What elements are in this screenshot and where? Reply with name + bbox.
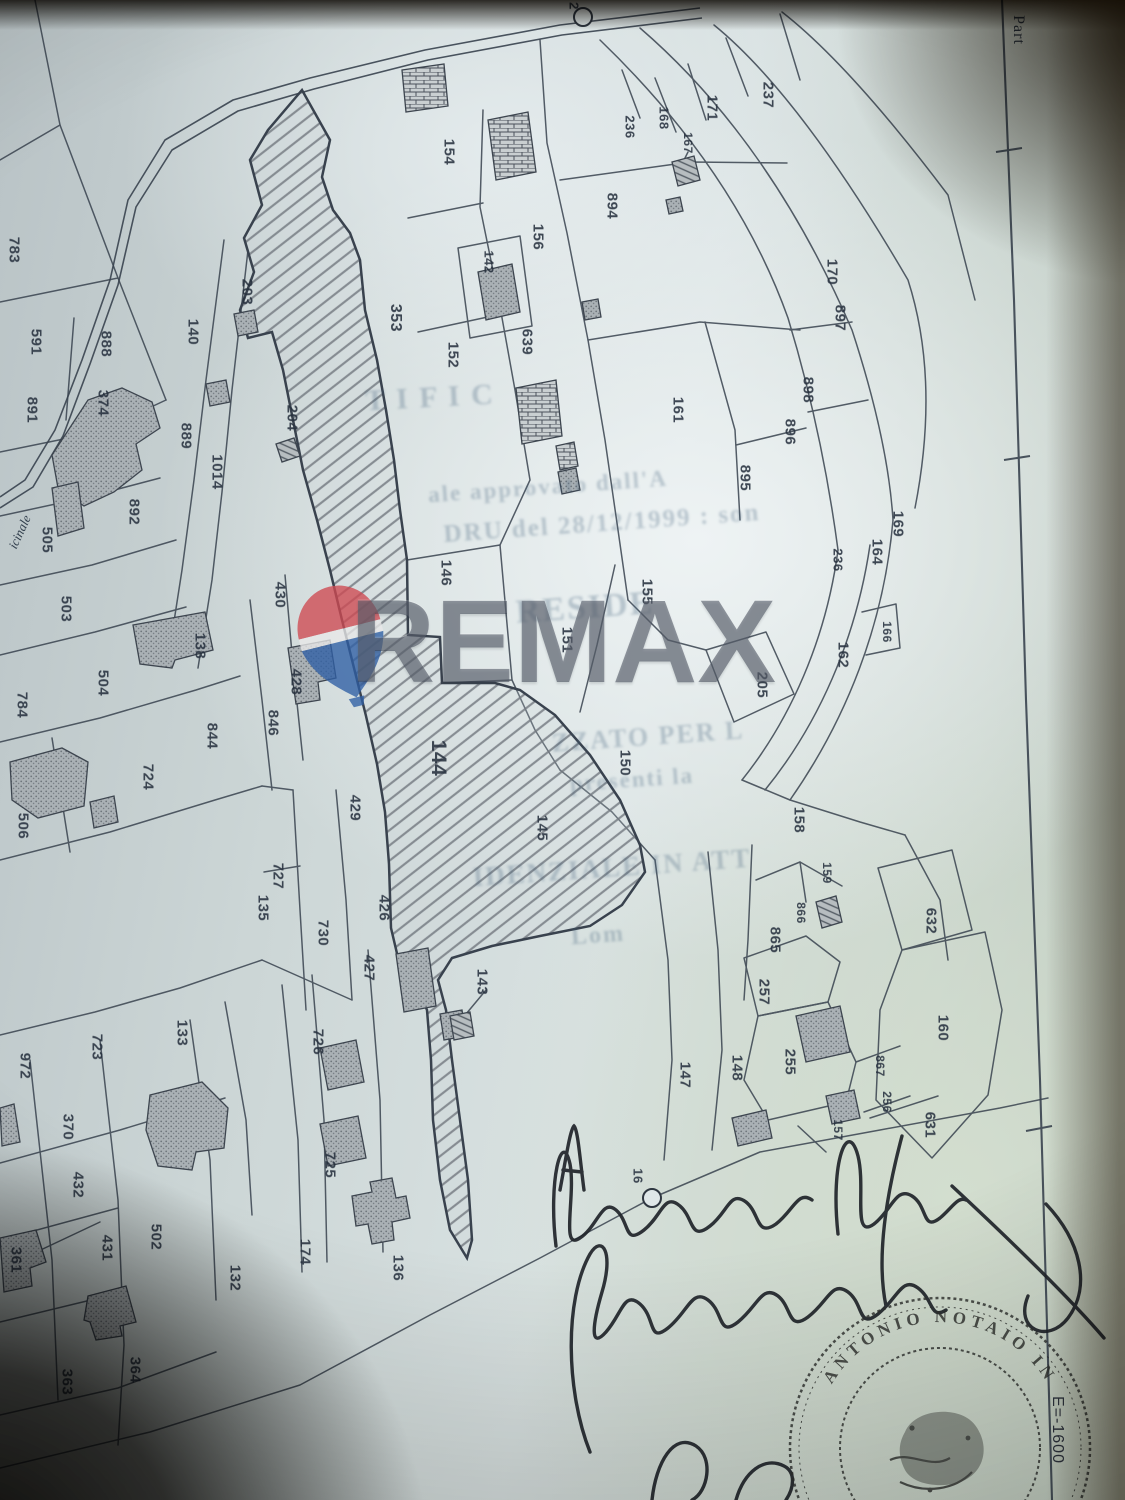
parcel-label: 895: [737, 465, 754, 492]
parcel-label: 502: [148, 1224, 165, 1251]
parcel-label: 725: [322, 1152, 339, 1179]
parcel-label: 363: [59, 1369, 76, 1396]
remax-watermark: REMAX: [295, 575, 815, 725]
parcel-label: 427: [361, 955, 378, 982]
survey-point-label: 16: [631, 1168, 646, 1183]
parcel-label: 784: [14, 692, 31, 719]
parcel-label: 255: [782, 1049, 799, 1076]
parcel-label: 132: [227, 1265, 244, 1292]
parcel-label: 429: [347, 795, 364, 822]
parcel-label: 727: [270, 863, 287, 890]
parcel-label: 632: [923, 908, 940, 935]
parcel-label: 152: [445, 342, 462, 369]
parcel-label: 844: [204, 723, 221, 750]
parcel-label: 723: [89, 1034, 106, 1061]
parcel-label: 237: [760, 82, 777, 109]
parcel-label: 865: [767, 927, 784, 954]
parcel-label: 370: [60, 1114, 77, 1141]
parcel-label: 846: [265, 710, 282, 737]
parcel-label: 236: [623, 115, 638, 138]
parcel-label: 724: [140, 764, 157, 791]
parcel-label: 154: [441, 139, 458, 166]
parcel-label: 143: [474, 969, 491, 996]
parcel-label: 136: [390, 1255, 407, 1282]
survey-point-label: 2: [567, 2, 582, 10]
parcel-label: 256: [880, 1091, 894, 1113]
parcel-label: 169: [890, 511, 907, 538]
bleed-through-text: IDENZIALE IN ATT: [472, 843, 753, 893]
photo-background: ANTONIO NOTAIO IN T I F I Cale approvato…: [0, 0, 1125, 1500]
parcel-label: 374: [95, 390, 112, 417]
parcel-label: 504: [95, 670, 112, 697]
parcel-label: 138: [192, 633, 209, 660]
bleed-through-text: DRU del 28/12/1999 : son: [443, 499, 762, 549]
parcel-label: 161: [670, 397, 687, 424]
parcel-label: 972: [17, 1053, 34, 1080]
parcel-label: 236: [831, 548, 846, 571]
parcel-label: 361: [8, 1247, 25, 1274]
parcel-label: 170: [824, 259, 841, 286]
parcel-label: 157: [831, 1119, 845, 1141]
parcel-labels-layer: T I F I Cale approvato dall'ADRU del 28/…: [0, 0, 1125, 1500]
parcel-label: 505: [39, 527, 56, 554]
parcel-label: 1014: [209, 454, 226, 489]
parcel-label: 866: [794, 902, 808, 924]
bleed-through-text: Lom: [570, 921, 626, 952]
parcel-label: 898: [800, 377, 817, 404]
parcel-label: 162: [835, 642, 852, 669]
parcel-label: 140: [185, 319, 202, 346]
parcel-label: 145: [534, 815, 551, 842]
parcel-label: 889: [178, 423, 195, 450]
parcel-label: 503: [58, 596, 75, 623]
parcel-label: 730: [315, 920, 332, 947]
parcel-label: 144: [426, 740, 450, 777]
parcel-label: 431: [99, 1235, 116, 1262]
parcel-label: 160: [935, 1015, 952, 1042]
parcel-label: 135: [255, 895, 272, 922]
parcel-label: 171: [704, 95, 721, 122]
remax-watermark-text: REMAX: [350, 583, 776, 701]
parcel-label: 591: [28, 329, 45, 356]
parcel-label: 164: [869, 539, 886, 566]
parcel-label: 150: [617, 750, 634, 777]
parcel-label: 364: [127, 1357, 144, 1384]
parcel-label: 142: [482, 250, 497, 273]
parcel-label: 432: [70, 1172, 87, 1199]
parcel-label: 783: [6, 237, 23, 264]
parcel-label: 726: [310, 1029, 327, 1056]
map-scale-label: E=-1600: [1048, 1396, 1066, 1464]
sheet-margin-label: Part: [1009, 15, 1027, 45]
parcel-label: 631: [922, 1112, 939, 1139]
parcel-label: 894: [604, 193, 621, 220]
parcel-label: 133: [174, 1020, 191, 1047]
parcel-label: 891: [24, 397, 41, 424]
parcel-label: 203: [239, 279, 256, 306]
parcel-label: 867: [873, 1055, 887, 1077]
parcel-label: 897: [832, 305, 849, 332]
parcel-label: 159: [820, 862, 834, 884]
bleed-through-text: ale approvato dall'A: [427, 466, 668, 509]
parcel-label: 353: [386, 304, 404, 332]
parcel-label: 148: [729, 1055, 746, 1082]
parcel-label: 257: [756, 979, 773, 1006]
parcel-label: 174: [297, 1239, 314, 1266]
parcel-label: 204: [284, 405, 301, 432]
parcel-label: 158: [791, 807, 808, 834]
parcel-label: 506: [15, 813, 32, 840]
parcel-label: 166: [880, 621, 894, 643]
parcel-label: 896: [782, 419, 799, 446]
parcel-label: 147: [677, 1062, 694, 1089]
paper-sheet: ANTONIO NOTAIO IN T I F I Cale approvato…: [0, 0, 1125, 1500]
bleed-through-text: T I F I C: [364, 378, 495, 419]
parcel-label: 888: [98, 331, 115, 358]
parcel-label: 892: [126, 499, 143, 526]
parcel-label: 167: [681, 132, 695, 154]
parcel-label: 168: [657, 106, 672, 129]
parcel-label: 639: [519, 329, 536, 356]
parcel-label: 426: [376, 895, 393, 922]
parcel-label: 156: [530, 224, 547, 251]
